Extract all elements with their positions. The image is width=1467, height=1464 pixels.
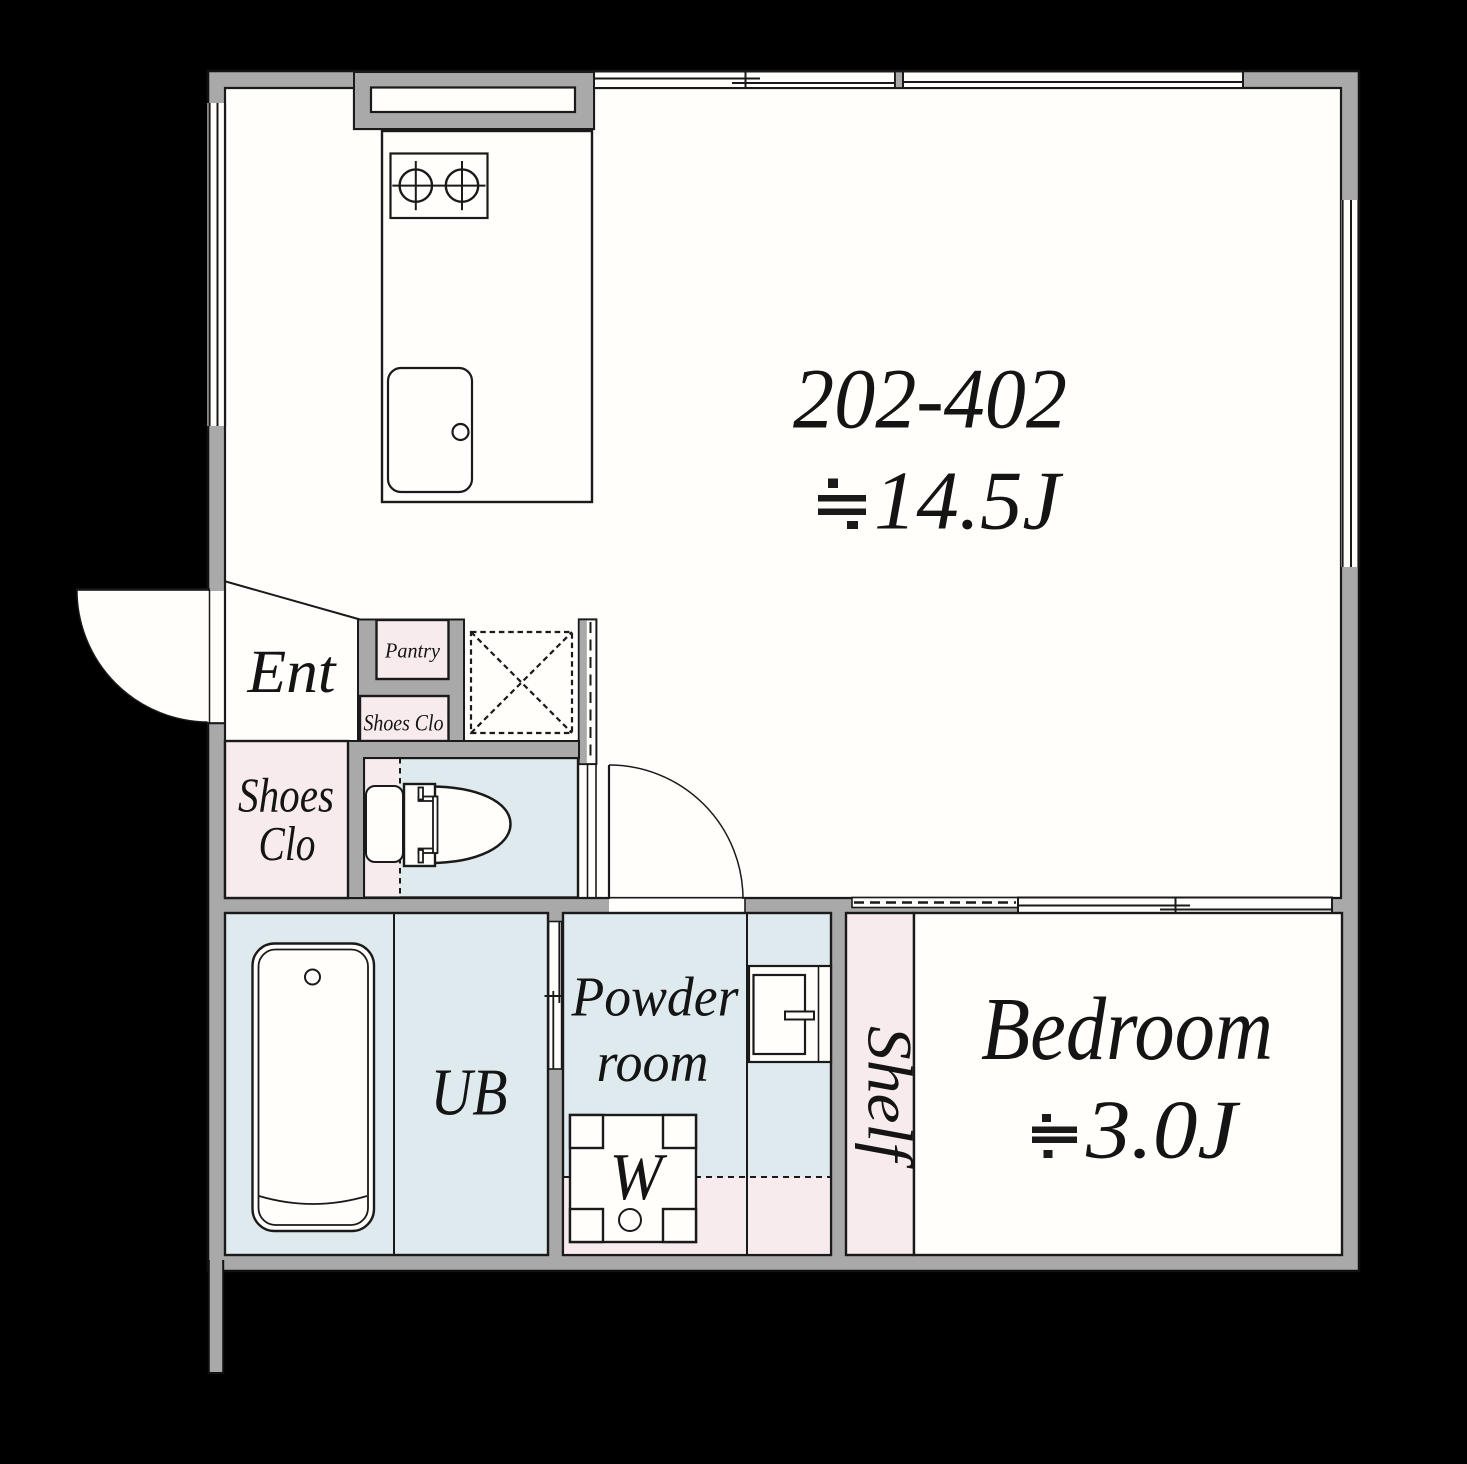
svg-text:Shoes: Shoes: [238, 768, 334, 823]
svg-text:202-402: 202-402: [793, 351, 1067, 447]
svg-text:W: W: [610, 1140, 668, 1214]
svg-text:Clo: Clo: [259, 816, 316, 871]
svg-text:3.0J: 3.0J: [1085, 1084, 1241, 1177]
svg-text:Bedroom: Bedroom: [981, 980, 1273, 1079]
svg-text:Ent: Ent: [246, 639, 337, 706]
svg-text:Powder: Powder: [571, 967, 739, 1029]
svg-text:UB: UB: [431, 1056, 508, 1130]
svg-text:Pantry: Pantry: [384, 639, 440, 663]
svg-text:room: room: [597, 1032, 709, 1094]
svg-text:Shoes Clo: Shoes Clo: [364, 711, 444, 736]
svg-text:14.5J: 14.5J: [874, 455, 1064, 548]
